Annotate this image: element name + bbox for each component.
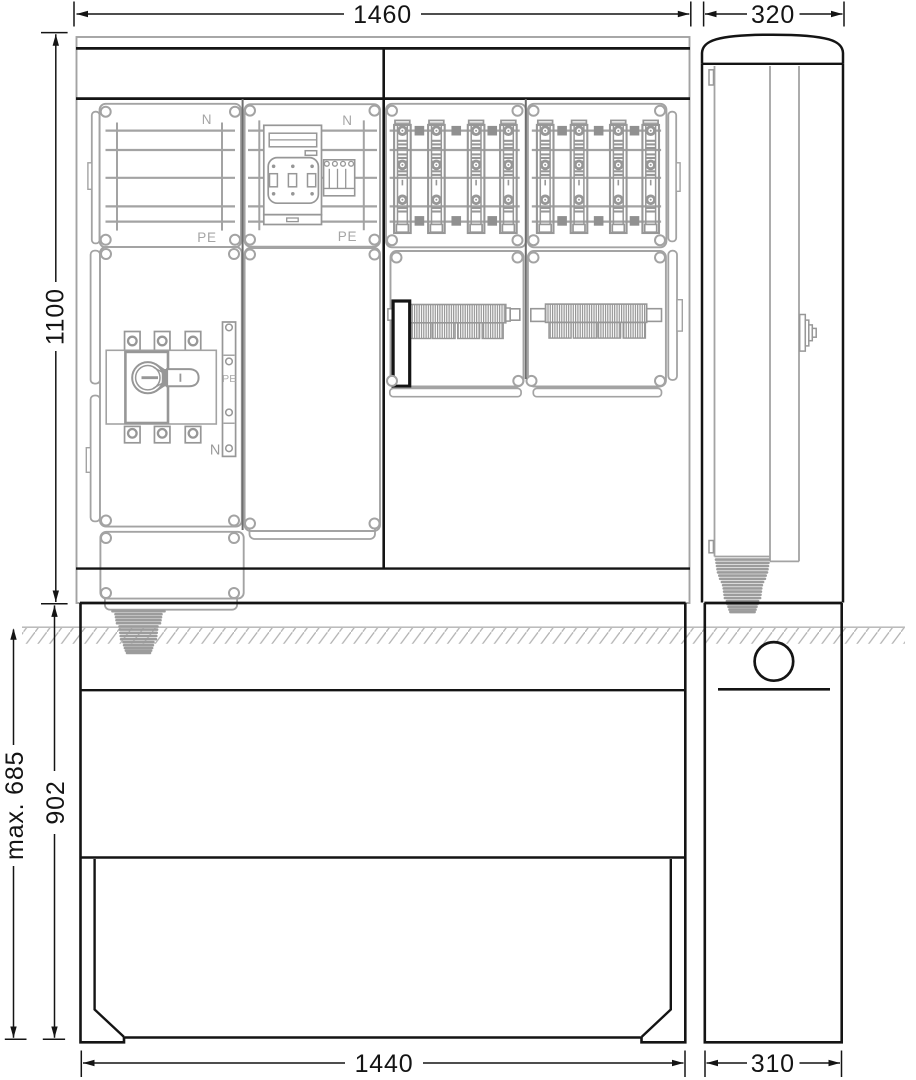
svg-text:N: N [202,112,213,127]
svg-text:max. 685: max. 685 [1,751,29,860]
svg-text:N: N [342,113,353,128]
svg-text:1440: 1440 [355,1050,414,1078]
svg-text:PE: PE [222,373,236,385]
svg-text:320: 320 [751,1,795,29]
svg-text:310: 310 [751,1050,795,1078]
svg-text:1460: 1460 [353,1,412,29]
svg-text:PE: PE [197,230,217,245]
svg-text:1100: 1100 [42,288,70,345]
svg-text:PE: PE [338,229,358,244]
svg-text:N: N [210,443,221,459]
svg-text:902: 902 [42,780,70,824]
